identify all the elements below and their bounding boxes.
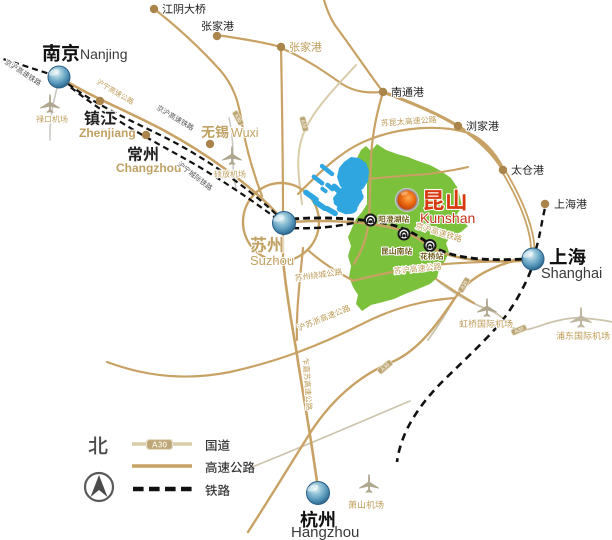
svg-text:Suzhou: Suzhou — [250, 253, 294, 268]
svg-text:A30: A30 — [152, 439, 168, 449]
svg-text:Zhenjiang: Zhenjiang — [79, 126, 136, 140]
svg-text:Changzhou: Changzhou — [116, 161, 181, 175]
svg-text:Hangzhou: Hangzhou — [291, 524, 359, 540]
svg-text:Wuxi: Wuxi — [231, 126, 259, 140]
svg-text:Shanghai: Shanghai — [541, 266, 602, 282]
svg-text:Nanjing: Nanjing — [80, 46, 127, 62]
svg-text:Kunshan: Kunshan — [420, 210, 475, 226]
